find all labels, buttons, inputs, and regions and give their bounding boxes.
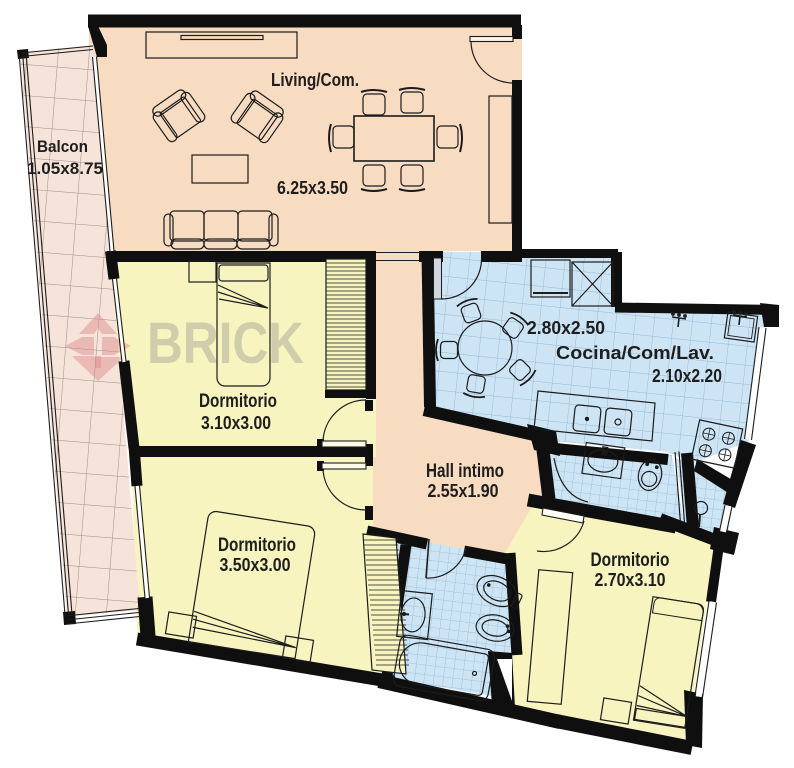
svg-text:Hall intimo: Hall intimo	[426, 461, 504, 482]
svg-text:Cocina/Com/Lav.: Cocina/Com/Lav.	[556, 343, 714, 363]
svg-text:6.25x3.50: 6.25x3.50	[277, 178, 348, 198]
svg-text:BRICK: BRICK	[147, 311, 304, 376]
svg-text:3.10x3.00: 3.10x3.00	[201, 413, 271, 433]
svg-text:3.50x3.00: 3.50x3.00	[220, 555, 291, 575]
svg-text:Dormitorio: Dormitorio	[199, 391, 277, 412]
svg-text:Living/Com.: Living/Com.	[271, 70, 359, 90]
svg-text:2.10x2.20: 2.10x2.20	[652, 366, 722, 386]
svg-text:Dormitorio: Dormitorio	[591, 550, 670, 571]
svg-text:1.05x8.75: 1.05x8.75	[27, 159, 103, 178]
svg-text:2.80x2.50: 2.80x2.50	[527, 318, 605, 338]
svg-text:Dormitorio: Dormitorio	[218, 535, 296, 556]
svg-text:2.70x3.10: 2.70x3.10	[595, 570, 666, 590]
svg-text:2.55x1.90: 2.55x1.90	[428, 481, 499, 501]
svg-text:Balcon: Balcon	[37, 137, 88, 156]
